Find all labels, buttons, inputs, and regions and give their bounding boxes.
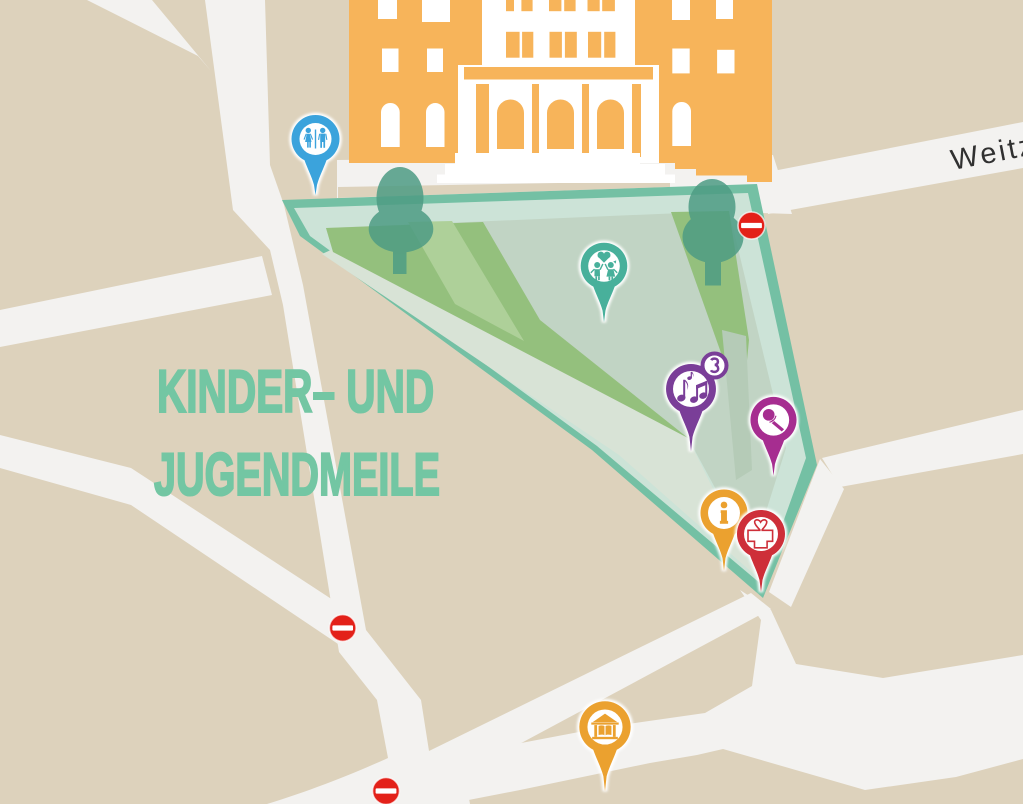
svg-text:JUGENDMEILE: JUGENDMEILE <box>154 441 440 508</box>
svg-text:KINDER– UND: KINDER– UND <box>157 358 434 425</box>
